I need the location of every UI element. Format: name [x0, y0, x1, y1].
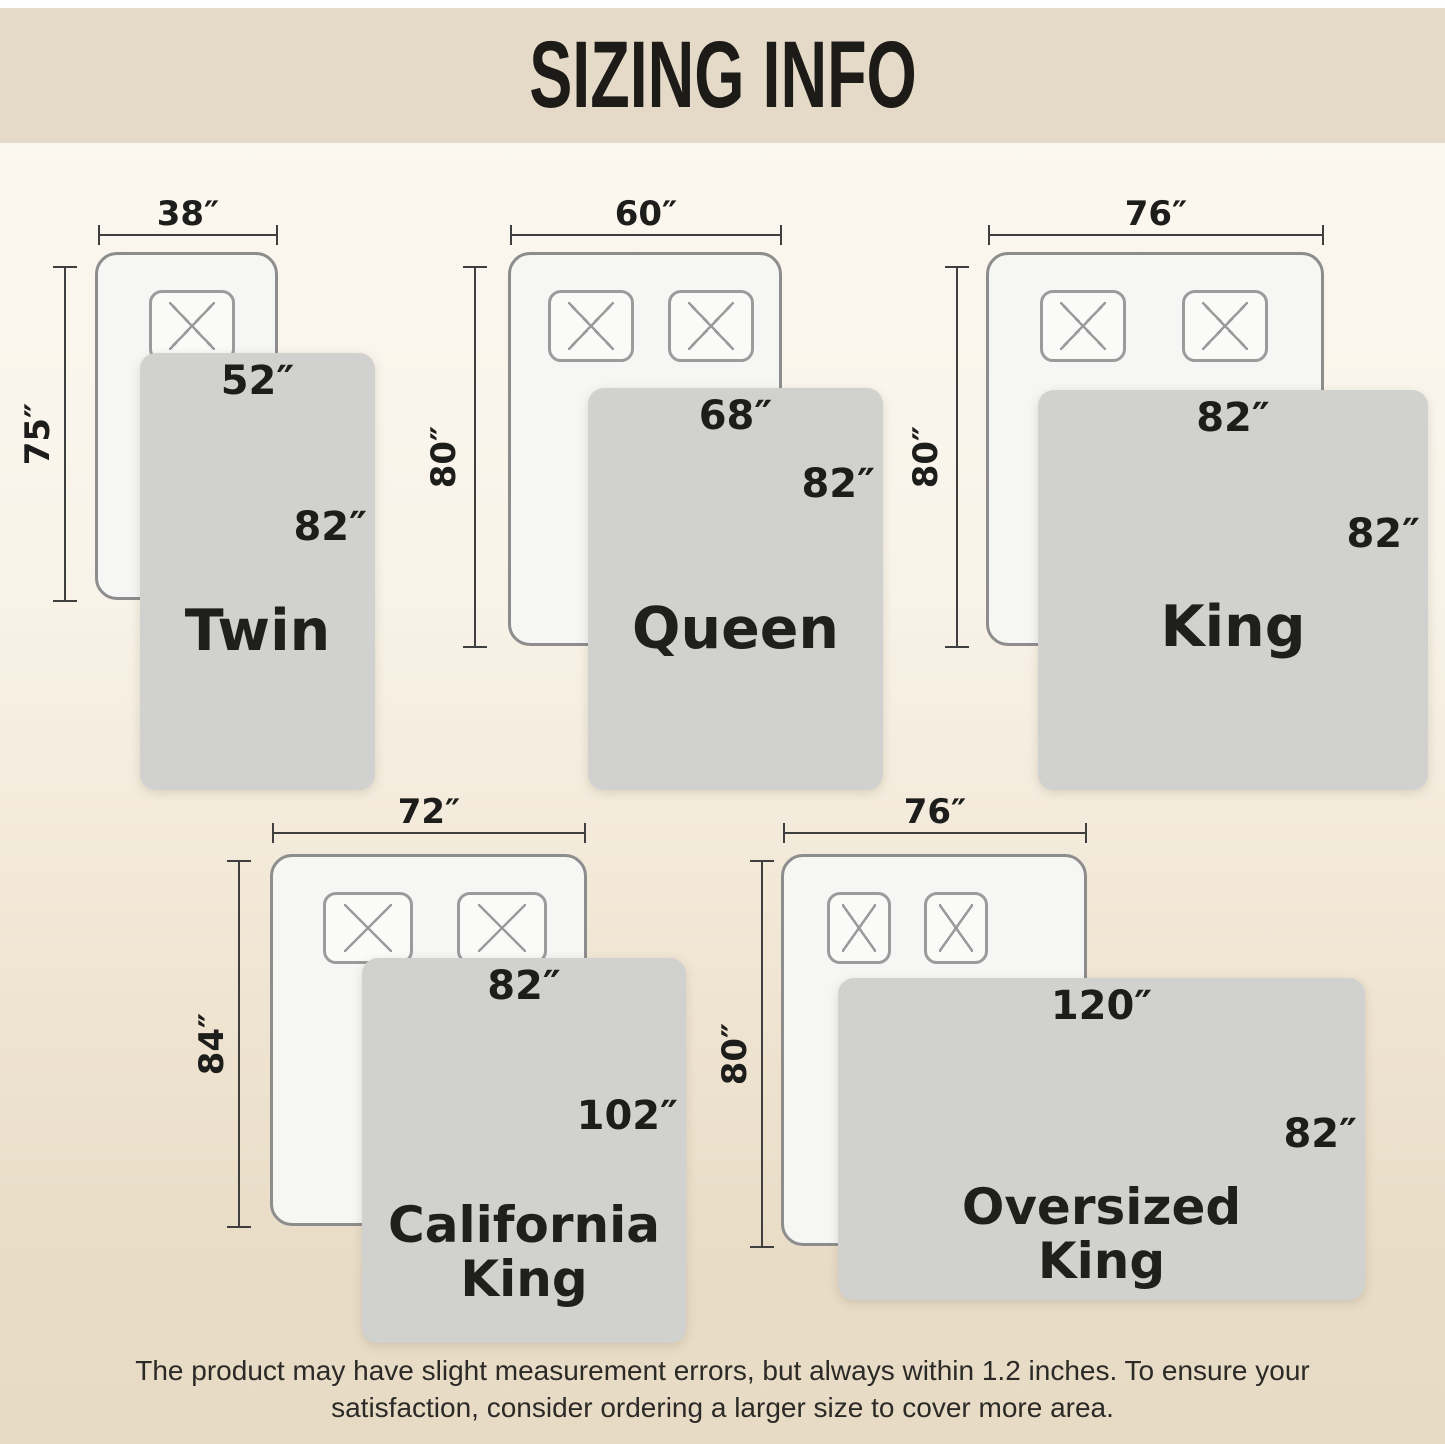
length-dimension-line: [761, 860, 763, 1248]
size-name-line: King: [838, 1234, 1365, 1288]
size-name: Oversized King: [838, 1180, 1365, 1288]
size-diagram-oversized-king: 76″ 80″ 120″ 82″ Oversized King: [0, 0, 1445, 1444]
pillow-icon: [924, 892, 988, 964]
blanket-length-label: 82″: [838, 1112, 1357, 1156]
width-dimension-line: [783, 832, 1087, 834]
bed-width-label: 76″: [783, 792, 1087, 832]
disclaimer-line-1: The product may have slight measurement …: [0, 1352, 1445, 1389]
size-name-line: Oversized: [838, 1180, 1365, 1234]
disclaimer-line-2: satisfaction, consider ordering a larger…: [0, 1389, 1445, 1426]
disclaimer-text: The product may have slight measurement …: [0, 1352, 1445, 1426]
blanket-width-label: 120″: [838, 984, 1365, 1028]
sizing-info-infographic: SIZING INFO 38″ 75″ 52″ 82″ Twin 60″ 80″…: [0, 0, 1445, 1444]
pillow-x-icon: [842, 904, 876, 952]
pillow-x-icon: [939, 904, 973, 952]
pillow-icon: [827, 892, 891, 964]
bed-length-label: 80″: [711, 984, 759, 1124]
